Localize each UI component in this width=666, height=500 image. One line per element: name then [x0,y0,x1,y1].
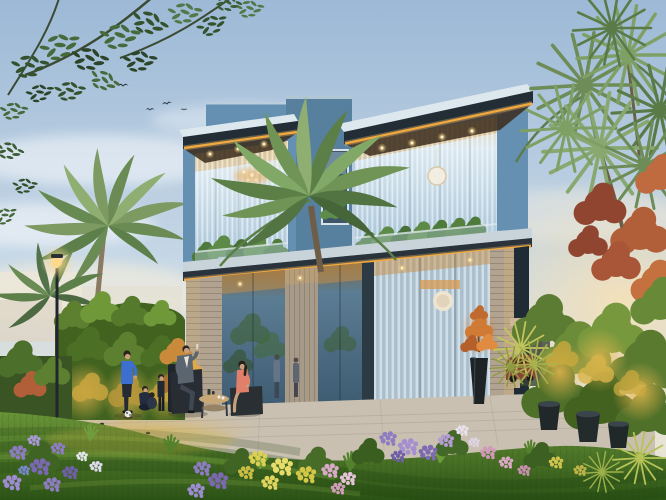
downlight [407,138,416,147]
entrance-frame [362,262,374,407]
glass-panel-2 [318,263,362,409]
downlight [467,126,476,135]
downlight [437,132,446,141]
villa-render-image [0,0,666,500]
downlight [260,140,269,149]
downlight [206,150,215,159]
downlight [377,143,386,152]
